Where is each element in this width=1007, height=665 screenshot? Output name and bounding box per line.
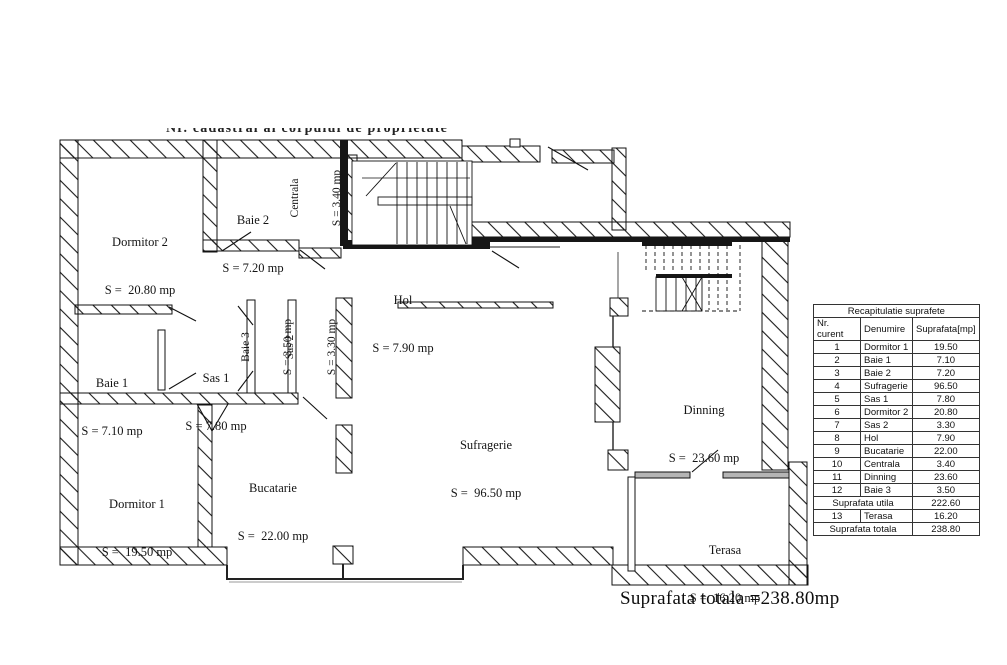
wall-entry-right xyxy=(612,148,626,230)
table-row: 4Sufragerie96.50 xyxy=(814,380,980,393)
table-row: 7Sas 23.30 xyxy=(814,419,980,432)
room-label-dormitor2: Dormitor 2 S = 20.80 mp xyxy=(105,202,176,330)
pillar-a xyxy=(610,298,628,316)
room-label-hol: Hol S = 7.90 mp xyxy=(372,260,433,388)
table-row: 12Baie 33.50 xyxy=(814,484,980,497)
door-bucatarie xyxy=(303,397,327,419)
room-label-dinning: Dinning S = 23.60 mp xyxy=(669,370,740,498)
cadastral-note-text: Nr. cadastral al corpului de proprietate xyxy=(166,128,476,137)
table-title-row: Recapitulatie suprafete xyxy=(814,305,980,318)
wall-terasa-left xyxy=(628,477,635,571)
door-hol-sufragerie xyxy=(492,251,519,268)
table-row: 1Dormitor 119.50 xyxy=(814,341,980,354)
table-row: 3Baie 27.20 xyxy=(814,367,980,380)
cadastral-note-clipped: Nr. cadastral al corpului de proprietate xyxy=(166,128,476,139)
pillar-d xyxy=(333,546,353,564)
room-label-sufragerie: Sufragerie S = 96.50 mp xyxy=(451,405,522,533)
pillar-b xyxy=(595,347,620,422)
table-row: 9Bucatarie22.00 xyxy=(814,445,980,458)
table-title: Recapitulatie suprafete xyxy=(814,305,980,318)
wall-baie1-sas1 xyxy=(158,330,165,390)
wall-left xyxy=(60,140,78,565)
wall-north-heavy-line xyxy=(455,237,790,242)
room-label-terasa: Terasa S = 16.20 mp xyxy=(690,510,761,638)
wall-entry-top xyxy=(552,150,614,163)
room-label-centrala: Centrala S = 3.40 mp xyxy=(260,170,372,226)
table-total-row: Suprafata totala238.80 xyxy=(814,523,980,536)
wall-south-mid xyxy=(463,547,613,565)
wall-bay-top xyxy=(462,146,540,162)
wall-kitchen-divider xyxy=(336,425,352,473)
table-subtotal-row: Suprafata utila222.60 xyxy=(814,497,980,510)
room-label-sas2: Sas 2 S = 3.30 mp xyxy=(255,319,367,375)
table-row-terasa: 13Terasa16.20 xyxy=(814,510,980,523)
table-row: 10Centrala3.40 xyxy=(814,458,980,471)
table-row: 6Dormitor 220.80 xyxy=(814,406,980,419)
area-table: Recapitulatie suprafete Nr. curent Denum… xyxy=(813,304,980,536)
room-label-bucatarie: Bucatarie S = 22.00 mp xyxy=(238,448,309,576)
total-area-caption: Suprafata totala =238.80mp xyxy=(620,588,840,610)
pillar-c xyxy=(608,450,628,470)
entry-bump xyxy=(510,139,520,147)
table-row: 5Sas 17.80 xyxy=(814,393,980,406)
room-label-baie1: Baie 1 S = 7.10 mp xyxy=(81,343,142,471)
wall-centrala-bottom xyxy=(299,248,341,258)
floor-plan-page: Nr. cadastral al corpului de proprietate… xyxy=(0,0,1007,665)
wall-north-band xyxy=(455,222,790,237)
wall-dinning-right xyxy=(762,237,788,470)
table-row: 11Dinning23.60 xyxy=(814,471,980,484)
table-row: 2Baie 17.10 xyxy=(814,354,980,367)
stair2-top-rail xyxy=(642,240,732,246)
wall-top xyxy=(60,140,462,158)
table-header-row: Nr. curent Denumire Suprafata[mp] xyxy=(814,318,980,341)
wall-dorm2-baie2 xyxy=(203,140,217,252)
room-label-dormitor1: Dormitor 1 S = 19.50 mp xyxy=(102,464,173,592)
table-row: 8Hol7.90 xyxy=(814,432,980,445)
